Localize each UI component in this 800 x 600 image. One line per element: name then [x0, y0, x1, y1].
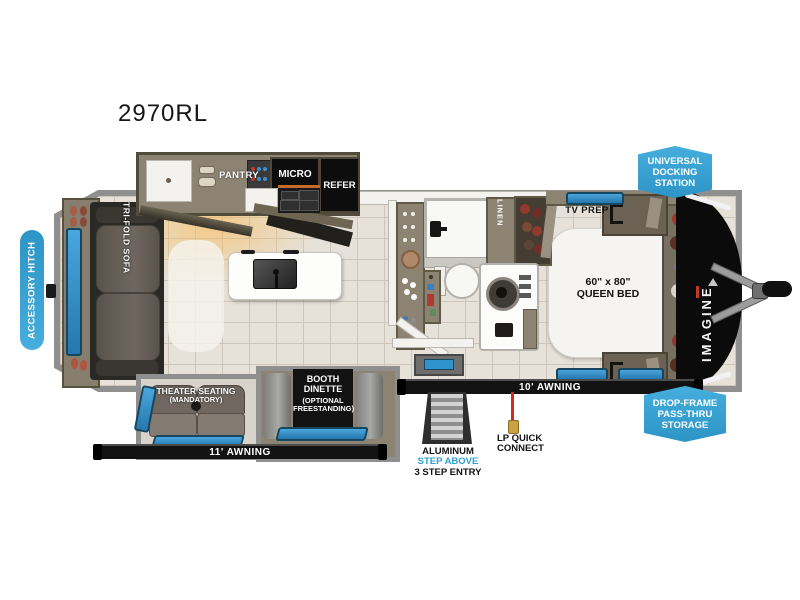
- refrigerator-label: REFER: [323, 180, 355, 191]
- drop-frame-line3: STORAGE: [644, 420, 726, 431]
- bed-size-label: 60" x 80": [549, 277, 667, 289]
- entry-step-well: [414, 354, 464, 376]
- imagine-brand-label: IMAGINE: [700, 220, 714, 362]
- booth-label-line2: DINETTE: [293, 385, 353, 395]
- booth-label: BOOTH DINETTE (OPTIONAL FREESTANDING): [293, 375, 353, 413]
- bath-cabinet: [423, 270, 441, 324]
- lp-connect-label: LP QUICK CONNECT: [497, 434, 544, 455]
- hitch-coupler: [762, 281, 792, 297]
- entry-steps-treads: [431, 394, 463, 440]
- washer-controls: [519, 275, 531, 280]
- tv-prep-label: TV PREP: [548, 206, 626, 216]
- shower-head-icon: [430, 221, 441, 237]
- lp-connect-line: [511, 392, 514, 420]
- theater-label-line2: (MANDATORY): [141, 396, 251, 404]
- queen-bed-label: 60" x 80" QUEEN BED: [549, 277, 667, 300]
- shower-head-arm: [441, 227, 447, 231]
- rear-hitch-stub: [46, 284, 56, 298]
- kitchen-island: [228, 252, 342, 300]
- theater-label: THEATER SEATING (MANDATORY): [141, 387, 251, 405]
- sofa-label: TRI-FOLD SOFA: [121, 202, 130, 380]
- bath-cabinet-knob: [429, 275, 433, 279]
- tri-fold-sofa: TRI-FOLD SOFA: [90, 202, 164, 380]
- vanity-bottles: [403, 212, 407, 216]
- awning-bar-left: 11' AWNING: [98, 444, 382, 459]
- washer-side-panel: [523, 309, 537, 349]
- washer-drum-center: [496, 287, 507, 298]
- cooktop: [278, 185, 320, 213]
- vanity-sink-bowl: [401, 250, 420, 269]
- entry-steps: [422, 392, 472, 444]
- stored-shoes-bottom: [71, 358, 78, 369]
- bed-type-label: QUEEN BED: [549, 289, 667, 301]
- microwave-label: MICRO: [278, 169, 311, 180]
- queen-bed: 60" x 80" QUEEN BED: [548, 228, 668, 358]
- drop-frame-line1: DROP-FRAME: [644, 398, 726, 409]
- rear-window-glass: [66, 228, 82, 356]
- entry-label: ALUMINUM STEP ABOVE 3 STEP ENTRY: [396, 447, 500, 478]
- bed-wardrobe-top-door: [646, 197, 663, 229]
- grand-design-triangle-icon: [708, 278, 718, 286]
- towel-green: [430, 309, 436, 316]
- lp-label-line2: CONNECT: [497, 444, 544, 454]
- universal-docking-line2: DOCKING: [638, 167, 712, 178]
- pantry-label: PANTRY: [212, 171, 266, 181]
- drop-frame-badge: DROP-FRAME PASS-THRU STORAGE: [644, 386, 726, 442]
- vanity-soaps: [402, 278, 408, 284]
- area-rug: [168, 240, 224, 352]
- universal-docking-line1: UNIVERSAL: [638, 156, 712, 167]
- drop-frame-line2: PASS-THRU: [644, 409, 726, 420]
- universal-docking-badge: UNIVERSAL DOCKING STATION: [638, 146, 712, 198]
- awning-10-label: 10' AWNING: [402, 382, 698, 393]
- linen-closet: LINEN: [486, 197, 516, 265]
- hall-wardrobe: [514, 196, 552, 266]
- booth-label-line4: FREESTANDING): [293, 405, 353, 413]
- toilet-bowl: [444, 263, 480, 299]
- island-handle-right: [283, 250, 292, 254]
- lp-connect-fitting: [508, 420, 519, 434]
- bath-wall-bottom: [392, 338, 474, 348]
- stored-shoes-top: [70, 206, 77, 216]
- theater-seat-right-cushion: [197, 413, 245, 437]
- hanging-clothes: [520, 204, 530, 214]
- washer-dryer-prep: [479, 263, 539, 351]
- washer-hamper: [495, 323, 513, 337]
- towel-blue: [427, 284, 434, 290]
- accessory-hitch-badge: ACCESSORY HITCH: [20, 230, 44, 350]
- model-title: 2970RL: [118, 100, 208, 128]
- towel-red: [427, 294, 434, 306]
- theater-seat-left-cushion: [149, 413, 197, 437]
- accessory-hitch-label: ACCESSORY HITCH: [27, 241, 38, 338]
- island-faucet-neck: [275, 275, 278, 289]
- imagine-red-accent: [696, 286, 699, 298]
- entry-label-line3: 3 STEP ENTRY: [396, 468, 500, 478]
- bedroom-top-window: [566, 192, 624, 205]
- floorplan-page: 2970RL ACCESSORY HITCH TRI-FOLD SOFA PAN…: [0, 0, 800, 600]
- refrigerator: REFER: [319, 157, 360, 213]
- entry-step-mat: [424, 359, 454, 370]
- awning-11-label: 11' AWNING: [98, 447, 382, 458]
- booth-floor-mat: [275, 427, 368, 441]
- island-handle-left: [241, 250, 255, 254]
- burner-grates: [281, 191, 299, 200]
- linen-label: LINEN: [495, 199, 503, 263]
- universal-docking-line3: STATION: [638, 178, 712, 189]
- awning-bar-right: 10' AWNING: [402, 379, 698, 394]
- kitchen-sink-drain: [166, 178, 171, 183]
